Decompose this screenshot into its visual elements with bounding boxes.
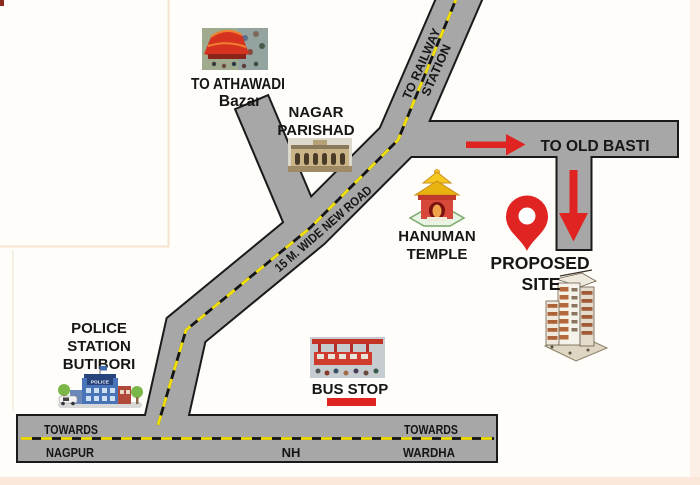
police-label-line1: POLICE xyxy=(71,320,127,337)
towards-wardha-line1: TOWARDS xyxy=(404,422,458,437)
towards-nagpur-line1: TOWARDS xyxy=(44,422,98,437)
page-edge-bottom xyxy=(0,477,700,485)
hanuman-label-line2: TEMPLE xyxy=(407,246,468,263)
athawadi-label-line1: TO ATHAWADI xyxy=(191,76,285,93)
bus-stop-underline xyxy=(327,398,376,406)
athawadi-bazar-image xyxy=(202,28,268,70)
athawadi-label-line2: Bazar xyxy=(219,93,261,110)
police-sign-text: POLICE xyxy=(91,380,109,385)
towards-nagpur-line2: NAGPUR xyxy=(46,445,95,460)
proposed-site-line2: SITE xyxy=(522,274,561,294)
nagar-parishad-line2: PARISHAD xyxy=(277,122,354,139)
bus-stop-image xyxy=(310,337,385,378)
page-edge-right xyxy=(690,0,700,485)
nagar-parishad-line1: NAGAR xyxy=(289,104,344,121)
corner-mark xyxy=(0,0,4,6)
site-location-map: TO RAILWAY STATION 15 M. WIDE NEW ROAD T… xyxy=(0,0,700,485)
police-label-line2: STATION xyxy=(67,338,131,355)
hanuman-label-line1: HANUMAN xyxy=(398,228,476,245)
page-background xyxy=(0,0,700,485)
bus-stop-label: BUS STOP xyxy=(312,381,388,398)
towards-wardha-line2: WARDHA xyxy=(403,445,456,460)
nagar-parishad-image xyxy=(288,138,352,172)
police-label-line3: BUTIBORI xyxy=(63,356,136,373)
nh-label: NH xyxy=(282,445,301,460)
proposed-site-line1: PROPOSED xyxy=(490,253,589,273)
old-basti-label: TO OLD BASTI xyxy=(540,138,649,155)
